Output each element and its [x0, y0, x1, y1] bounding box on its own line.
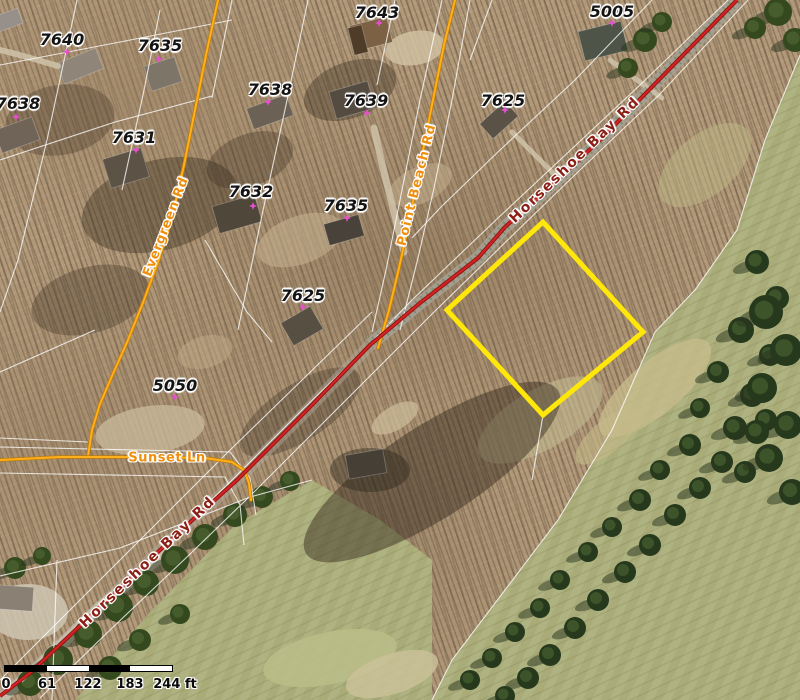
terrain-shadow-patch: [24, 253, 157, 348]
building-footprint: [247, 94, 294, 129]
parcel-boundary-line: [0, 20, 232, 65]
parcel-boundary-line: [0, 438, 88, 442]
terrain-shadow-patch: [0, 76, 120, 164]
aerial-parcel-map[interactable]: 7640763576387631763876437639762550057632…: [0, 0, 800, 700]
building-footprint: [281, 306, 323, 346]
terrain-light-patch: [92, 399, 208, 462]
driveway: [512, 132, 560, 180]
terrain-light-patch: [174, 329, 236, 374]
building-footprint: [0, 585, 34, 612]
parcel-boundary-line: [0, 330, 95, 372]
terrain-light-patch: [383, 26, 448, 70]
parcel-boundary-line: [470, 0, 492, 60]
building-footprint: [0, 8, 23, 32]
building-footprint: [578, 21, 628, 61]
map-overlay-layers: [0, 0, 800, 700]
